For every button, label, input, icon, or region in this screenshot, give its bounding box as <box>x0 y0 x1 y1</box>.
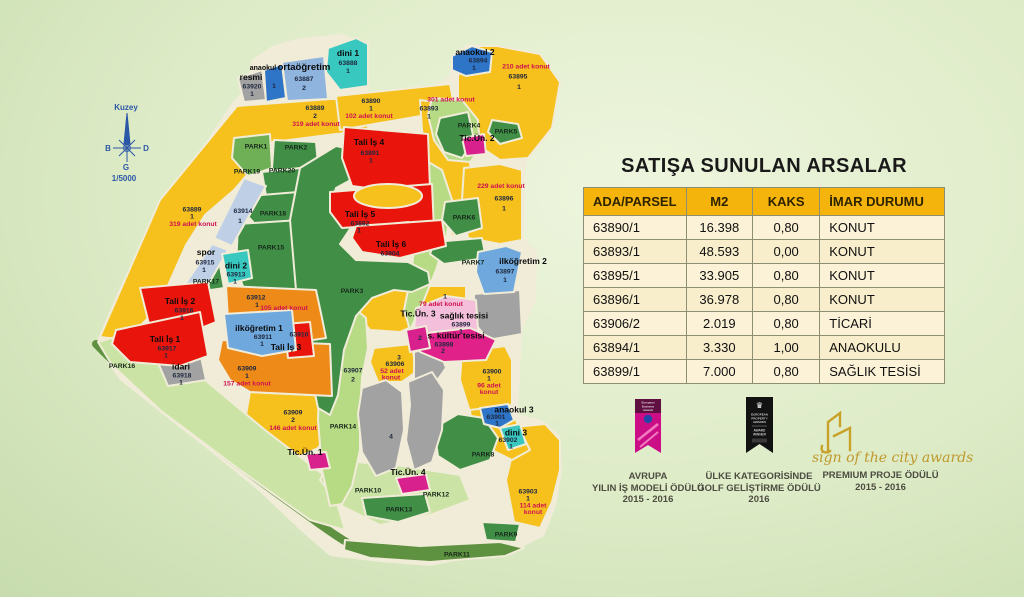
cell-m2: 2.019 <box>686 312 752 336</box>
parcel-no: 63910 <box>290 332 309 339</box>
parcel-sub: 1 <box>495 421 499 428</box>
parcel-label: Tic.Ün. 2 <box>459 133 495 143</box>
award-caption-line: PREMIUM PROJE ÖDÜLÜ <box>798 470 963 482</box>
parcel-no: 63900 <box>483 369 502 376</box>
parcel-sub: 1 <box>260 341 264 348</box>
plots-table: ADA/PARSEL M2 KAKS İMAR DURUMU 63890/116… <box>583 187 945 384</box>
col-ada-parsel: ADA/PARSEL <box>584 188 687 216</box>
table-row: 63890/116.3980,80KONUT <box>584 216 945 240</box>
parcel-sub: 1 <box>487 376 491 383</box>
park-label: PARK5 <box>495 129 518 136</box>
cell-kaks: 0,00 <box>753 240 820 264</box>
parcel-no: 63918 <box>173 373 192 380</box>
unit-count: 105 adet konut <box>260 305 308 312</box>
cell-imar: KONUT <box>820 264 945 288</box>
park-label: PARK14 <box>330 424 357 431</box>
parcel-sub: 2 <box>441 348 445 355</box>
parcel-no: 63893 <box>420 106 439 113</box>
parcel-label: Tali İş 1 <box>150 334 181 344</box>
cell-imar: KONUT <box>820 288 945 312</box>
parcel-sub: 1 <box>427 114 431 121</box>
park-label: PARK1 <box>245 144 268 151</box>
parcel-no: 63896 <box>495 196 514 203</box>
parcel-label: ilköğretim 1 <box>235 323 283 333</box>
cell-ada: 63893/1 <box>584 240 687 264</box>
unit-count: 229 adet konut <box>477 183 525 190</box>
parcel-no: 63888 <box>339 60 358 67</box>
parcel-no: 63903 <box>519 489 538 496</box>
master-plan-map: PARK1 PARK2 PARK19 PARK20 PARK18 PARK15 … <box>85 5 585 580</box>
parcel-no: 63915 <box>196 260 215 267</box>
parcel-sub: 1 <box>443 294 447 301</box>
cell-ada: 63890/1 <box>584 216 687 240</box>
park-label: PARK12 <box>423 492 450 499</box>
award-caption-line: YILIN İŞ MODELİ ÖDÜLÜ <box>586 483 710 495</box>
unit-count: 319 adet konut <box>292 121 340 128</box>
park-label: PARK19 <box>234 169 261 176</box>
award-caption-line: AVRUPA <box>586 471 710 483</box>
cell-m2: 16.398 <box>686 216 752 240</box>
cell-m2: 3.330 <box>686 336 752 360</box>
parcel-sub: 2 <box>291 417 295 424</box>
award-caption: PREMIUM PROJE ÖDÜLÜ 2015 - 2016 <box>798 470 963 493</box>
unit-count: 102 adet konut <box>345 113 393 120</box>
parcel-sub: 1 <box>245 373 249 380</box>
award-sign-of-the-city: sign of the city awards PREMIUM PROJE ÖD… <box>798 406 963 493</box>
parcel-sub: 2 <box>313 113 317 120</box>
unit-count: 146 adet konut <box>269 425 317 432</box>
parcel-sub: 1 <box>369 158 373 165</box>
award-caption-line: 2016 <box>694 494 824 506</box>
award-caption-line: 2015 - 2016 <box>586 494 710 506</box>
parcel-no: 63887 <box>295 76 314 83</box>
park-label: PARK13 <box>386 507 413 514</box>
award-logo-text: sign of the city awards <box>812 450 963 466</box>
parcel-no: 63895 <box>509 74 528 81</box>
compass-west-label: B <box>105 144 111 153</box>
parcel-sub: 1 <box>357 228 361 235</box>
parcel-label: Tali İş 6 <box>376 239 407 249</box>
cell-ada: 63895/1 <box>584 264 687 288</box>
parcel-no: 63920 <box>243 84 262 91</box>
cell-kaks: 0,80 <box>753 216 820 240</box>
cell-kaks: 1,00 <box>753 336 820 360</box>
site-plan-page: PARK1 PARK2 PARK19 PARK20 PARK18 PARK15 … <box>0 0 1024 597</box>
parcel-label: Tali İş 2 <box>165 296 196 306</box>
compass-rose-icon <box>113 113 141 162</box>
parcel-no: 63892 <box>351 221 370 228</box>
parcel-no: 63889 <box>183 207 202 214</box>
park-label: PARK2 <box>285 145 308 152</box>
park-label: PARK8 <box>472 452 495 459</box>
col-imar-durumu: İMAR DURUMU <box>820 188 945 216</box>
cell-kaks: 0,80 <box>753 312 820 336</box>
crest-icon: ♛ <box>755 401 762 410</box>
parcel-sub: 1 <box>255 302 259 309</box>
table-row: 63896/136.9780,80KONUT <box>584 288 945 312</box>
ribbon-magenta-icon: European Business Awards <box>635 399 661 461</box>
parcel-sub: 1 <box>369 106 373 113</box>
parcel-label: resmi <box>240 72 263 82</box>
table-row: 63895/133.9050,80KONUT <box>584 264 945 288</box>
cell-m2: 48.593 <box>686 240 752 264</box>
parcel-label: dini 1 <box>337 48 359 58</box>
col-kaks: KAKS <box>753 188 820 216</box>
table-row: 63899/17.0000,80SAĞLIK TESİSİ <box>584 360 945 384</box>
cell-ada: 63906/2 <box>584 312 687 336</box>
table-row: 63906/22.0190,80TİCARİ <box>584 312 945 336</box>
cell-m2: 36.978 <box>686 288 752 312</box>
parcel-label: sağlık tesisi <box>440 311 488 321</box>
parcel-sub: 1 <box>164 353 168 360</box>
award-caption-line: 2015 - 2016 <box>798 482 963 494</box>
unit-count: 319 adet konut <box>169 221 217 228</box>
compass-north-label: Kuzey <box>114 103 138 112</box>
parcel-sub: 1 <box>250 91 254 98</box>
page-title: SATIŞA SUNULAN ARSALAR <box>583 155 945 178</box>
table-row: 63893/148.5930,00KONUT <box>584 240 945 264</box>
unit-count: 210 adet konut <box>502 64 550 71</box>
parcel-no: 63891 <box>361 150 380 157</box>
park-label: PARK16 <box>109 363 136 370</box>
unit-count: konut <box>480 389 499 396</box>
parcel-label: Tali İş 5 <box>345 209 376 219</box>
compass-east-label: D <box>143 144 149 153</box>
parcel-no: 63904 <box>381 251 400 258</box>
unit-count: 301 adet konut <box>427 97 475 104</box>
parcel-no: 63906 <box>386 361 405 368</box>
inner-yellow <box>354 184 422 208</box>
unit-count: 79 adet konut <box>419 301 464 308</box>
parcel-no: 63899 <box>452 322 471 329</box>
cell-imar: SAĞLIK TESİSİ <box>820 360 945 384</box>
parcel-sub: 1 <box>238 218 242 225</box>
parcel-sub: 1 <box>233 279 237 286</box>
parcel-no: 63914 <box>234 208 253 215</box>
cell-imar: KONUT <box>820 240 945 264</box>
park-label: PARK20 <box>269 168 296 175</box>
table-header-row: ADA/PARSEL M2 KAKS İMAR DURUMU <box>584 188 945 216</box>
parcel-label: spor <box>197 247 216 257</box>
city-mark-icon <box>816 406 862 456</box>
parcel-label: ilköğretim 2 <box>499 256 547 266</box>
svg-text:WINNER: WINNER <box>753 433 767 437</box>
svg-text:AWARDS: AWARDS <box>753 420 766 424</box>
cell-m2: 7.000 <box>686 360 752 384</box>
parcel-no: 63913 <box>227 272 246 279</box>
svg-text:Awards: Awards <box>643 408 653 412</box>
parcel-no: 63909 <box>284 410 303 417</box>
parcel-sub: 1 <box>509 444 513 451</box>
col-m2: M2 <box>686 188 752 216</box>
parcel-label: idari <box>172 362 190 372</box>
award-european-business: European Business Awards AVRUPA YILIN İŞ… <box>586 399 710 506</box>
parcel-label: anaokul <box>250 65 277 72</box>
cell-ada: 63894/1 <box>584 336 687 360</box>
award-caption: AVRUPA YILIN İŞ MODELİ ÖDÜLÜ 2015 - 2016 <box>586 471 710 506</box>
cell-kaks: 0,80 <box>753 360 820 384</box>
park-label: PARK7 <box>462 260 485 267</box>
parcel-sub: 1 <box>502 206 506 213</box>
parcel-label: Tali İş 4 <box>354 137 385 147</box>
park-label: PARK10 <box>355 488 382 495</box>
parcel-no: 63889 <box>306 105 325 112</box>
parcel-sub: 1 <box>503 277 507 284</box>
park-label: PARK4 <box>458 123 481 130</box>
parcel-no: 63890 <box>362 98 381 105</box>
parcel-no: 63909 <box>238 366 257 373</box>
parcel-label: ortaöğretim <box>278 62 331 73</box>
park-label: PARK15 <box>258 245 285 252</box>
parcel-label: dini 3 <box>505 428 527 438</box>
cell-imar: TİCARİ <box>820 312 945 336</box>
parcel-no: 63894 <box>469 58 488 65</box>
parcel-label: Tic.Ün. 4 <box>390 467 426 477</box>
compass-south-label: G <box>123 163 129 172</box>
parcel-label: s. kültür tesisi <box>427 331 484 341</box>
parcel-sub: 1 <box>202 267 206 274</box>
unit-count: 157 adet konut <box>223 381 271 388</box>
parcel-no: 63912 <box>247 295 266 302</box>
park-label: PARK18 <box>260 211 287 218</box>
parcel-sub: 2 <box>302 85 306 92</box>
parcel-sub: 1 <box>190 214 194 221</box>
parcel-label: Tic.Ün. 3 <box>400 309 436 319</box>
park-label: PARK17 <box>193 279 220 286</box>
parcel-no: 63911 <box>254 334 273 341</box>
parcel-no: 63907 <box>344 368 363 375</box>
parcel-sub: 1 <box>272 83 276 90</box>
unit-count: konut <box>524 509 543 516</box>
parcel-sub: 1 <box>346 68 350 75</box>
park-label: PARK11 <box>444 552 470 559</box>
park-label: PARK3 <box>341 288 364 295</box>
parcel-sub: 1 <box>472 65 476 72</box>
cell-m2: 33.905 <box>686 264 752 288</box>
parcel-sub: 1 <box>517 84 521 91</box>
parcel-sub: 2 <box>418 335 422 342</box>
cell-imar: ANAOKULU <box>820 336 945 360</box>
cell-kaks: 0,80 <box>753 288 820 312</box>
parcel-label: Tali İş 3 <box>271 342 302 352</box>
parcel-no: 63917 <box>158 346 177 353</box>
sales-panel: SATIŞA SUNULAN ARSALAR ADA/PARSEL M2 KAK… <box>583 155 945 384</box>
parcel-label: Tic.Ün. 1 <box>287 447 323 457</box>
parcel-sub: 2 <box>351 377 355 384</box>
map-scale: 1/5000 <box>112 174 137 183</box>
park-label: PARK9 <box>495 532 518 539</box>
parcel-label: dini 2 <box>225 261 247 271</box>
parcel-no: 63897 <box>496 269 515 276</box>
ribbon-black-icon: ♛ EUROPEAN PROPERTY AWARDS AWARD WINNER <box>746 397 773 461</box>
cell-imar: KONUT <box>820 216 945 240</box>
parcel-label: anaokul 3 <box>494 405 533 415</box>
parcel-sub: 1 <box>179 380 183 387</box>
park-label: PARK6 <box>453 215 476 222</box>
parcel-label: anaokul 2 <box>455 47 494 57</box>
parcel-sub: 4 <box>389 434 393 441</box>
cell-ada: 63899/1 <box>584 360 687 384</box>
unit-count: konut <box>382 375 401 382</box>
table-row: 63894/13.3301,00ANAOKULU <box>584 336 945 360</box>
parcel-sub: 1 <box>180 315 184 322</box>
parcel-no: 63916 <box>175 308 194 315</box>
cell-kaks: 0,80 <box>753 264 820 288</box>
parcel-sub: 1 <box>526 496 530 503</box>
parcel-no: 63902 <box>499 437 518 444</box>
cell-ada: 63896/1 <box>584 288 687 312</box>
